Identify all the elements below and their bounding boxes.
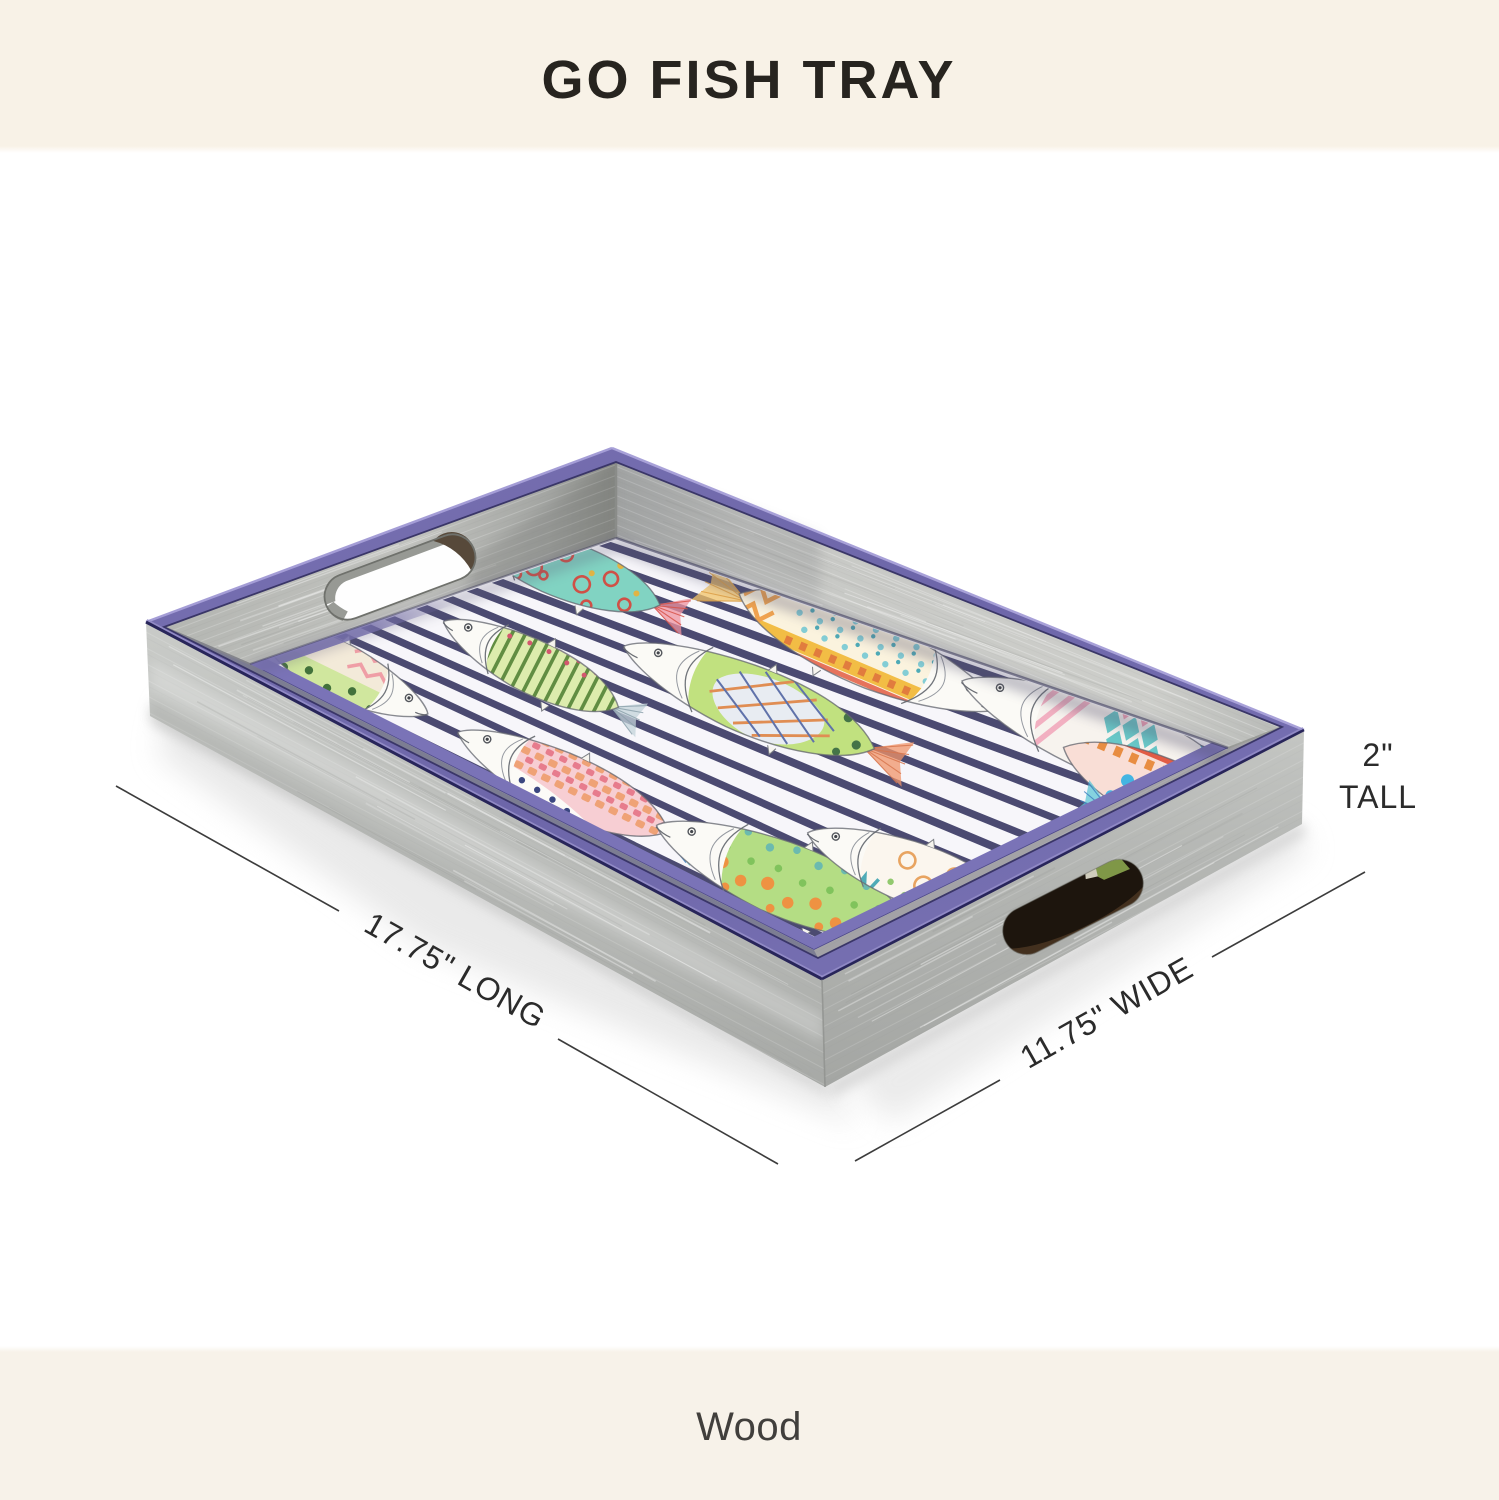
svg-text:GO FISH TRAY: GO FISH TRAY [541,50,956,110]
svg-text:2": 2" [1362,737,1393,773]
svg-text:TALL: TALL [1339,779,1417,815]
svg-text:Wood: Wood [696,1405,802,1449]
